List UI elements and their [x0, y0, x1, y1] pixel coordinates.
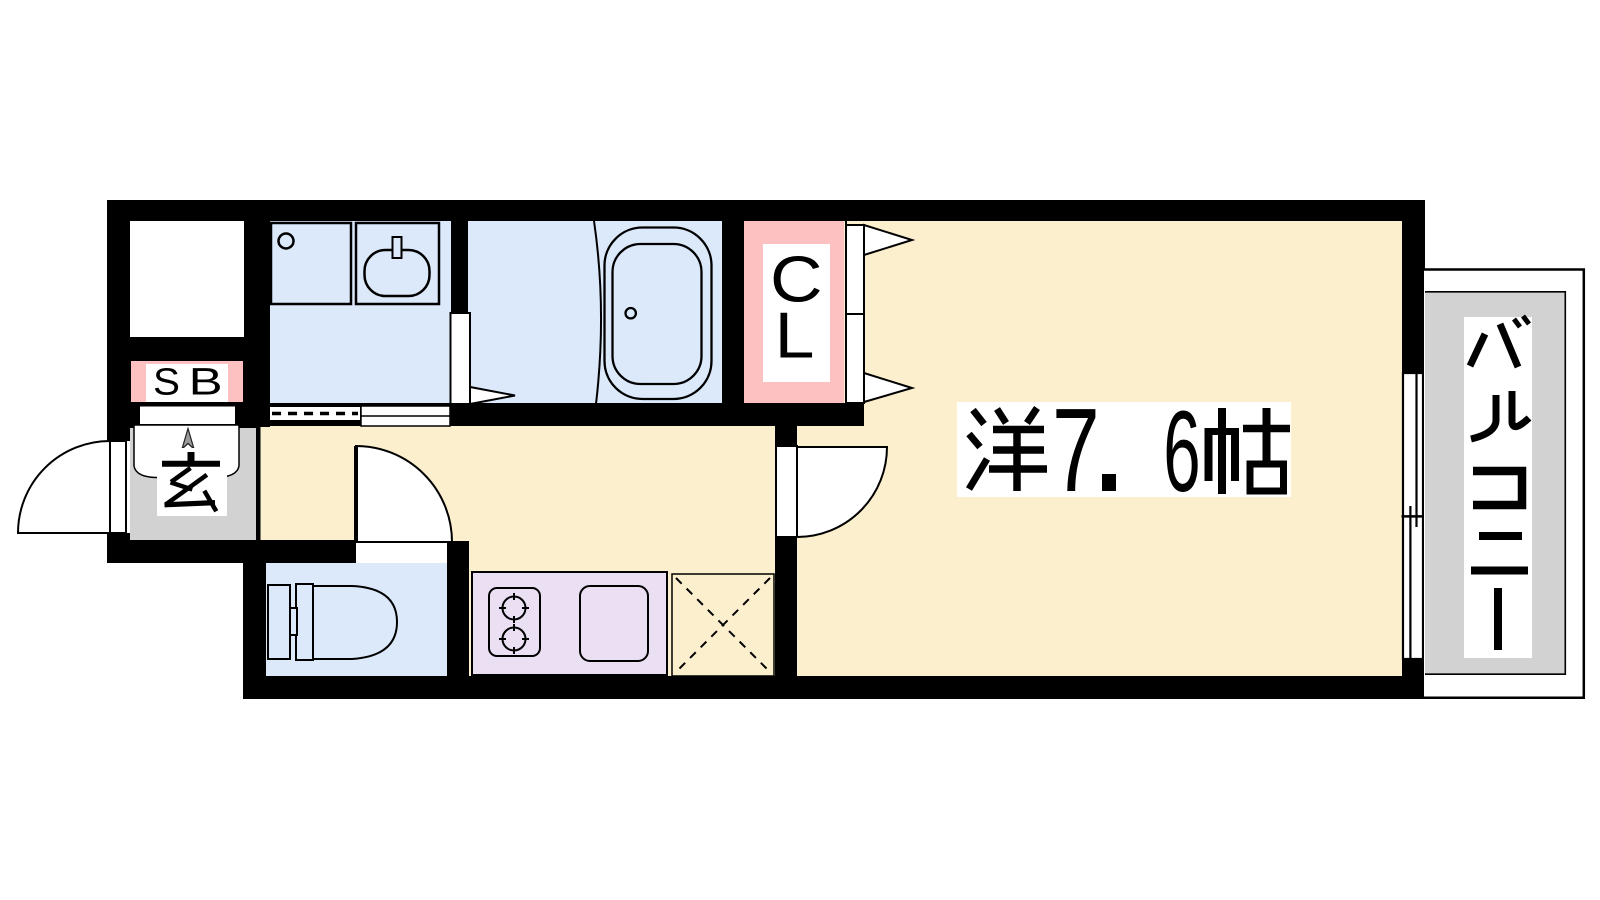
svg-text:7: 7	[1052, 383, 1100, 516]
svg-text:S: S	[153, 362, 180, 404]
svg-text:6: 6	[1163, 387, 1200, 515]
svg-text:L: L	[775, 299, 815, 371]
svg-text:B: B	[189, 362, 223, 404]
